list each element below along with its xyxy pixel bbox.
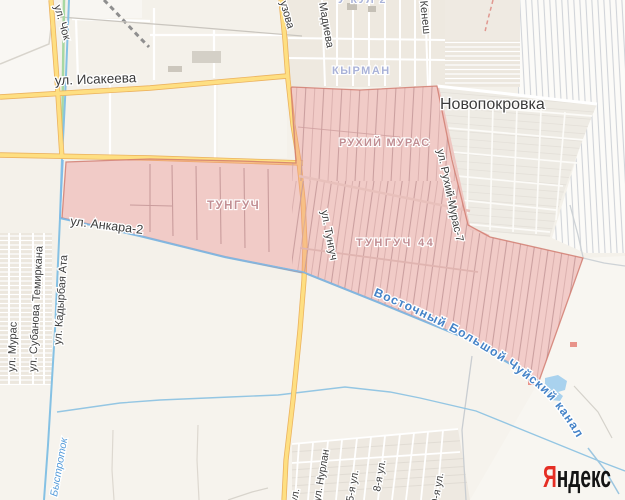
svg-text:У КУЛ 2: У КУЛ 2: [338, 0, 387, 6]
svg-text:ул.: ул.: [288, 488, 302, 500]
svg-text:ул. Исакеева: ул. Исакеева: [55, 70, 137, 88]
svg-text:ул. Мурас: ул. Мурас: [6, 321, 20, 372]
svg-text:РУХИЙ МУРАС: РУХИЙ МУРАС: [339, 136, 430, 149]
svg-text:Яндекс: Яндекс: [543, 459, 611, 494]
svg-text:ТУНГУЧ: ТУНГУЧ: [207, 200, 260, 212]
svg-text:ТУНГУЧ 44: ТУНГУЧ 44: [356, 237, 435, 249]
svg-text:КЫРМАН: КЫРМАН: [332, 65, 391, 77]
svg-text:Новопокровка: Новопокровка: [440, 96, 545, 113]
